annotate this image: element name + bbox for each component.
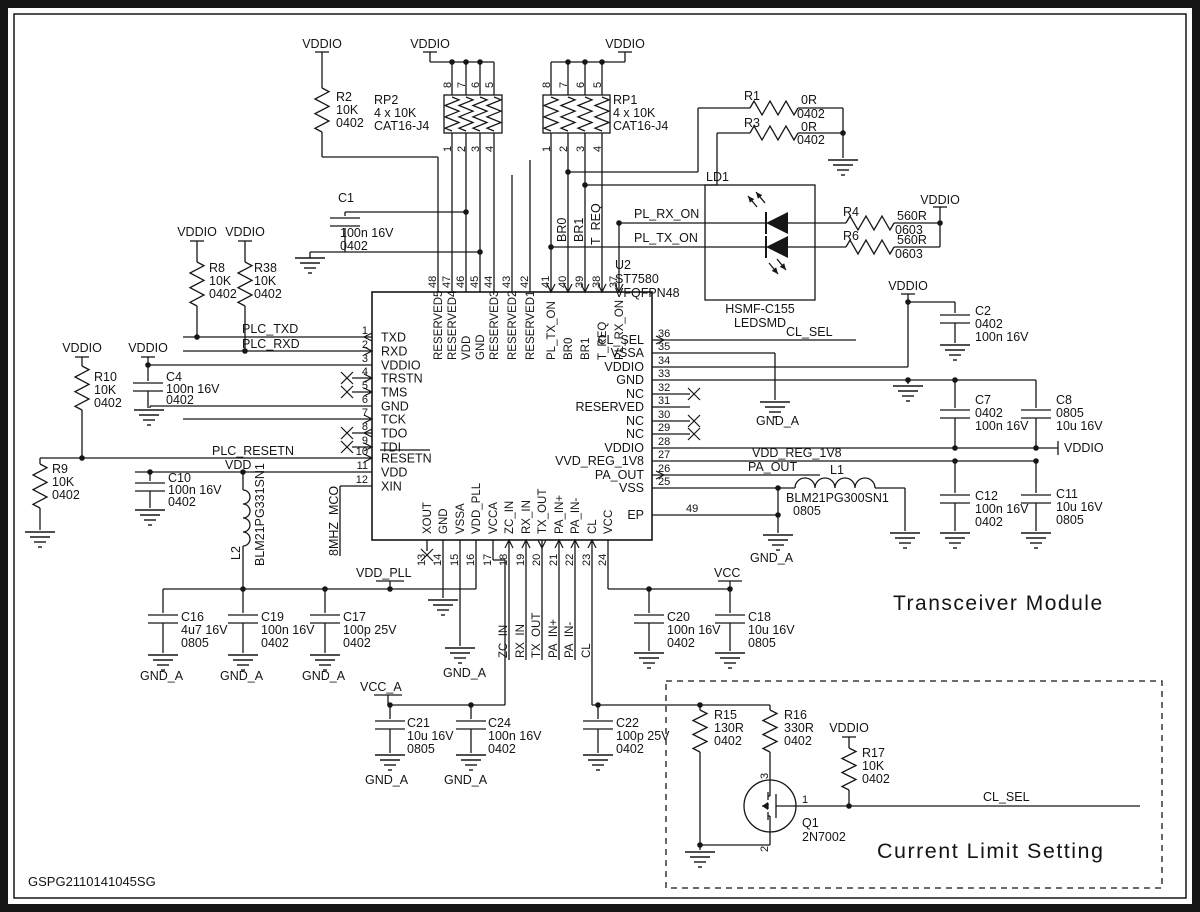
junction-dot [905,377,911,383]
net-label-gnd-a: GND_A [750,551,794,565]
pin-number-top-45: 45 [469,276,481,288]
net-label-vddio: VDDIO [888,279,928,293]
label-C24-2: 0402 [488,742,516,756]
pin-number-top-38: 38 [591,276,603,288]
pin-name-ep: EP [627,508,644,522]
pin-number-right-28: 28 [658,436,670,448]
label-L1-0: L1 [830,463,844,477]
junction-dot [548,244,554,250]
pack-label-RP1: CAT16-J4 [613,119,668,133]
pin-number-right-34: 34 [658,355,670,367]
pin-number-left-7: 7 [362,407,368,419]
pin-number-top-41: 41 [540,276,552,288]
label-R6-1: 560R [897,233,927,247]
junction-dot [697,702,703,708]
net-label-gnd-a: GND_A [302,669,346,683]
label-R3-2: 0402 [797,133,825,147]
mosfet-body-arrow [762,802,768,810]
led-diode-top [766,212,788,234]
resistor-zigzag [487,97,501,131]
resistor-zigzag [75,366,89,410]
net-label-vddio: VDDIO [177,225,217,239]
pack-pin-RP1: 1 [541,146,553,152]
pin-name-PA_IN-: PA_IN- [570,498,582,534]
resistor-zigzag [544,97,558,131]
pin-number-bottom-24: 24 [597,554,609,566]
junction-dot [775,512,781,518]
pin-number-right-32: 32 [658,382,670,394]
pin-number-bottom-18: 18 [498,554,510,566]
junction-dot [727,586,733,592]
net-label-vddio: VDDIO [605,37,645,51]
net-label-gnd-a: GND_A [220,669,264,683]
pin-number-right-27: 27 [658,449,670,461]
inductor [243,490,250,546]
pin-name-ZC_IN: ZC_IN [504,501,516,534]
junction-dot [582,182,588,188]
chip-refdes: U2 [615,258,631,272]
junction-dot [463,209,469,215]
junction-dot [952,458,958,464]
pack-label-RP2: 4 x 10K [374,106,417,120]
resistor-zigzag [595,97,609,131]
label-C16-0: C16 [181,610,204,624]
pin-name-RESERVED: RESERVED [575,400,644,414]
label-C8-1: 0805 [1056,406,1084,420]
junction-dot [194,334,200,340]
junction-dot [322,586,328,592]
junction-dot [697,842,703,848]
label-LD1-kind: LEDSMD [734,316,786,330]
label-C2-2: 100n 16V [975,330,1029,344]
schematic-canvas: 1TXD2RXD3VDDIO4TRSTN5TMS6GND7TCK8TDO9TDI… [0,0,1200,912]
pack-label-RP1: 4 x 10K [613,106,656,120]
pin-name-RESETN: RESETN [381,452,432,466]
junction-dot [463,59,469,65]
pin-number-bottom-13: 13 [416,554,428,566]
pin-number-left-1: 1 [362,325,368,337]
label-R4-0: R4 [843,205,859,219]
label-R16-2: 0402 [784,734,812,748]
label-C2-1: 0402 [975,317,1003,331]
net-label-gnd-a: GND_A [365,773,409,787]
junction-dot [905,299,911,305]
label-C7-0: C7 [975,393,991,407]
pin-name-RESERVED5: RESERVED5 [433,291,445,360]
net-label-ZC_IN: ZC_IN [498,625,510,658]
resistor-zigzag [445,97,459,131]
label-R17-0: R17 [862,746,885,760]
pin-number-right-29: 29 [658,422,670,434]
resistor-zigzag [473,97,487,131]
pin-name-VCC: VCC [603,510,615,534]
pin-name-RESERVED2: RESERVED2 [507,291,519,360]
label-R10-1: 10K [94,383,117,397]
pin-number-right-31: 31 [658,395,670,407]
label-C19-0: C19 [261,610,284,624]
label-C1-1: 100n 16V [340,226,394,240]
junction-dot [840,130,846,136]
pin-name-VDD: VDD [461,336,473,360]
pin-number-left-10: 10 [356,446,368,458]
net-label-RX_IN: RX_IN [515,624,527,658]
pack-label-RP2: CAT16-J4 [374,119,429,133]
pin-number-left-12: 12 [356,474,368,486]
pin-name-VSSA: VSSA [455,503,467,534]
label-C8-0: C8 [1056,393,1072,407]
pin-name-VDD_PLL: VDD_PLL [471,482,483,534]
label-C1-0: C1 [338,191,354,205]
pin-name-TDO: TDO [381,427,408,441]
pin-name-VSS: VSS [619,481,644,495]
label-R2-0: R2 [336,90,352,104]
pin-name-VDDIO: VDDIO [381,359,421,373]
label-C1-2: 0402 [340,239,368,253]
pin-number-top-48: 48 [427,276,439,288]
junction-dot [846,803,852,809]
label-C11-0: C11 [1056,487,1078,501]
net-label-plc-rxd: PLC_RXD [242,337,300,351]
label-Q1-ref: Q1 [802,816,819,830]
resistor-zigzag [33,464,47,508]
pin-name-XOUT: XOUT [422,502,434,534]
label-C20-1: 100n 16V [667,623,721,637]
pin-name-PA_OUT: PA_OUT [595,468,644,482]
schematic-sheet: 1TXD2RXD3VDDIO4TRSTN5TMS6GND7TCK8TDO9TDI… [0,0,1200,912]
led-diode-bottom [766,236,788,258]
pin-name-NC: NC [626,414,644,428]
label-C19-1: 100n 16V [261,623,315,637]
pin-name-RESERVED4: RESERVED4 [447,290,459,360]
net-label-8mhz-mco: 8MHZ_MCO [327,486,341,556]
label-C22-0: C22 [616,716,639,730]
pin-number-top-40: 40 [557,276,569,288]
pin-number-bottom-20: 20 [531,554,543,566]
pack-pin-RP2: 6 [470,82,482,88]
junction-dot [937,220,943,226]
label-C18-2: 0805 [748,636,776,650]
net-label-gnd-a: GND_A [756,414,800,428]
label-R17-1: 10K [862,759,885,773]
net-label-pl-tx-on: PL_TX_ON [634,231,698,245]
resistor-zigzag [459,97,473,131]
label-L2-part: BLM21PG331SN1 [253,463,267,566]
label-L1-2: 0805 [793,504,821,518]
label-C11-1: 10u 16V [1056,500,1103,514]
label-L1-1: BLM21PG300SN1 [786,491,889,505]
pin-number-bottom-19: 19 [515,554,527,566]
label-R10-0: R10 [94,370,117,384]
pin-number-top-43: 43 [501,276,513,288]
junction-dot [646,586,652,592]
pin-number-bottom-14: 14 [432,554,444,566]
label-R6-2: 0603 [895,247,923,261]
pin-number-left-8: 8 [362,421,368,433]
label-C22-2: 0402 [616,742,644,756]
pin-name-RESERVED3: RESERVED3 [489,291,501,360]
junction-dot [565,59,571,65]
pin-number-left-11: 11 [357,460,368,472]
pin-number-left-5: 5 [362,380,368,392]
pack-body-RP1 [543,95,610,133]
pin-name-XIN: XIN [381,480,402,494]
label-C21-0: C21 [407,716,430,730]
label-C18-0: C18 [748,610,771,624]
label-C4-2: 0402 [166,393,194,407]
label-R38-0: R38 [254,261,277,275]
net-label-vddio: VDDIO [62,341,102,355]
pin-number-top-44: 44 [483,276,495,288]
pack-pin-RP2: 2 [456,146,468,152]
pin-number-right-35: 35 [658,341,670,353]
label-LD1-ref: LD1 [706,170,729,184]
net-label-vddio: VDDIO [829,721,869,735]
chip-package: VFQFPN48 [615,286,680,300]
label-C24-0: C24 [488,716,511,730]
pin-name-NC: NC [626,387,644,401]
junction-dot [775,485,781,491]
pin-name-GND: GND [475,334,487,360]
pack-pin-RP1: 6 [575,82,587,88]
label-R4-1: 560R [897,209,927,223]
junction-dot [468,702,474,708]
label-C19-2: 0402 [261,636,289,650]
pin-name-GND: GND [616,373,644,387]
q1-pin-1: 1 [802,794,808,806]
pin-name-RXD: RXD [381,345,407,359]
q1-pin-3: 3 [759,773,771,779]
junction-dot [240,586,246,592]
junction-dot [1033,458,1039,464]
label-R1-0: R1 [744,89,760,103]
label-C12-0: C12 [975,489,998,503]
label-C20-2: 0402 [667,636,695,650]
pin-number-right-30: 30 [658,409,670,421]
label-C21-2: 0805 [407,742,435,756]
label-C10-2: 0402 [168,495,196,509]
net-label-cl-sel-2: CL_SEL [983,790,1030,804]
net-label-vcc-a: VCC_A [360,680,402,694]
pin-name-GND: GND [438,508,450,534]
resistor-zigzag [763,710,777,752]
pin-number-bottom-22: 22 [564,554,576,566]
resistor-zigzag [693,710,707,752]
net-label-br1: BR1 [572,218,586,242]
pin-number-bottom-15: 15 [449,554,461,566]
pack-pin-RP2: 7 [456,82,468,88]
led-body-LD1 [705,185,815,300]
resistor-zigzag [842,748,856,790]
pack-label-RP2: RP2 [374,93,398,107]
junction-dot [595,702,601,708]
pin-name-PL_RX_ON: PL_RX_ON [614,300,626,360]
q1-pin-2: 2 [759,846,771,852]
label-R15-2: 0402 [714,734,742,748]
junction-dot [147,469,153,475]
pin-number-right-26: 26 [658,463,670,475]
pack-pin-RP2: 3 [470,146,482,152]
label-R16-0: R16 [784,708,807,722]
net-label-pa-out: PA_OUT [748,460,797,474]
label-R16-1: 330R [784,721,814,735]
pin-name-VDDIO: VDDIO [604,441,644,455]
net-label-vdd: VDD [225,458,251,472]
pin-name-PL_TX_ON: PL_TX_ON [546,301,558,360]
junction-dot [582,59,588,65]
label-LD1-part: HSMF-C155 [725,302,795,316]
label-R9-0: R9 [52,462,68,476]
junction-dot [449,59,455,65]
pin-number-right-25: 25 [658,476,670,488]
net-label-vddio: VDDIO [920,193,960,207]
pin-name-TRSTN: TRSTN [381,372,423,386]
pack-pin-RP1: 7 [558,82,570,88]
label-C2-0: C2 [975,304,991,318]
label-R3-1: 0R [801,120,817,134]
label-C7-1: 0402 [975,406,1003,420]
junction-dot [145,362,151,368]
net-label-PA_IN-: PA_IN- [564,622,576,658]
pin-number-left-3: 3 [362,353,368,365]
pin-name-VCCA: VCCA [488,502,500,534]
net-label-TX_OUT: TX_OUT [531,613,543,658]
net-label-vcc: VCC [714,566,740,580]
label-R10-2: 0402 [94,396,122,410]
net-label-plc-resetn: PLC_RESETN [212,444,294,458]
pack-pin-RP2: 1 [442,146,454,152]
label-R2-2: 0402 [336,116,364,130]
label-R2-1: 10K [336,103,359,117]
label-C22-1: 100p 25V [616,729,670,743]
pin-name-RX_IN: RX_IN [521,500,533,534]
pack-pin-RP1: 2 [558,146,570,152]
label-C7-2: 100n 16V [975,419,1029,433]
net-label-PA_IN+: PA_IN+ [548,619,560,658]
resistor-zigzag [561,97,575,131]
pack-label-RP1: RP1 [613,93,637,107]
junction-dot [952,445,958,451]
junction-dot [387,586,393,592]
label-C8-2: 10u 16V [1056,419,1103,433]
chip-part: ST7580 [615,272,659,286]
label-C21-1: 10u 16V [407,729,454,743]
junction-dot [79,455,85,461]
inductor [795,478,875,488]
pin-name-CL: CL [587,519,599,534]
label-R9-2: 0402 [52,488,80,502]
pin-number-top-47: 47 [441,276,453,288]
net-label-vddio: VDDIO [128,341,168,355]
label-C17-2: 0402 [343,636,371,650]
pin-name-GND: GND [381,400,409,414]
pin-name-PA_IN+: PA_IN+ [554,495,566,534]
pin-name-TMS: TMS [381,386,407,400]
label-R3-0: R3 [744,116,760,130]
net-label-vdd-reg-1v8: VDD_REG_1V8 [752,446,842,460]
pin-name-VDD: VDD [381,466,407,480]
label-R8-2: 0402 [209,287,237,301]
label-R17-2: 0402 [862,772,890,786]
pin-name-RESERVED1: RESERVED1 [525,291,537,360]
pin-number-right-36: 36 [658,328,670,340]
pack-pin-RP1: 8 [541,82,553,88]
pack-pin-RP1: 4 [592,146,604,152]
junction-dot [599,59,605,65]
pin-number-ep: 49 [686,503,698,515]
pin-number-left-4: 4 [362,366,368,378]
net-label-vddio: VDDIO [410,37,450,51]
junction-dot [1033,445,1039,451]
pack-pin-RP1: 5 [592,82,604,88]
label-R15-1: 130R [714,721,744,735]
label-C16-2: 0805 [181,636,209,650]
pin-name-TXD: TXD [381,331,406,345]
pack-pin-RP1: 3 [575,146,587,152]
pin-name-TCK: TCK [381,413,407,427]
pin-number-bottom-21: 21 [548,554,560,566]
resistor-zigzag [238,262,252,306]
resistor-zigzag [750,101,798,115]
label-R15-0: R15 [714,708,737,722]
resistor-zigzag [578,97,592,131]
pin-name-BR1: BR1 [580,338,592,360]
pin-number-left-2: 2 [362,339,368,351]
net-label-gnd-a: GND_A [444,773,488,787]
resistor-zigzag [315,88,329,132]
pin-number-bottom-23: 23 [581,554,593,566]
pin-name-VVD_REG_1V8: VVD_REG_1V8 [555,454,644,468]
net-label-vddio-tag: VDDIO [1064,441,1104,455]
label-C11-2: 0805 [1056,513,1084,527]
pack-pin-RP2: 4 [484,146,496,152]
pin-name-TX_OUT: TX_OUT [537,489,549,534]
label-C20-0: C20 [667,610,690,624]
junction-dot [387,702,393,708]
net-label-vdd-pll: VDD_PLL [356,566,412,580]
junction-dot [477,249,483,255]
junction-dot [565,169,571,175]
label-C17-1: 100p 25V [343,623,397,637]
label-R1-1: 0R [801,93,817,107]
label-R38-2: 0402 [254,287,282,301]
label-R9-1: 10K [52,475,75,489]
pin-number-bottom-16: 16 [465,554,477,566]
pin-name-NC: NC [626,427,644,441]
net-label-CL: CL [581,643,593,658]
pin-number-right-33: 33 [658,368,670,380]
pin-number-top-42: 42 [519,276,531,288]
pack-pin-RP2: 8 [442,82,454,88]
pin-number-left-6: 6 [362,394,368,406]
pin-number-top-46: 46 [455,276,467,288]
label-L2-ref: L2 [229,546,243,560]
net-label-vddio: VDDIO [225,225,265,239]
pin-name-VDDIO: VDDIO [604,360,644,374]
label-C16-1: 4u7 16V [181,623,228,637]
pin-number-top-39: 39 [574,276,586,288]
net-label-vddio: VDDIO [302,37,342,51]
net-label-gnd-a: GND_A [140,669,184,683]
pack-pin-RP2: 5 [484,82,496,88]
section-title: Current Limit Setting [877,839,1104,863]
label-C17-0: C17 [343,610,366,624]
net-label-plc-txd: PLC_TXD [242,322,298,336]
label-R1-2: 0402 [797,107,825,121]
pin-name-T_REQ: T_REQ [597,322,609,360]
label-C24-1: 100n 16V [488,729,542,743]
junction-dot [616,220,622,226]
label-Q1-part: 2N7002 [802,830,846,844]
